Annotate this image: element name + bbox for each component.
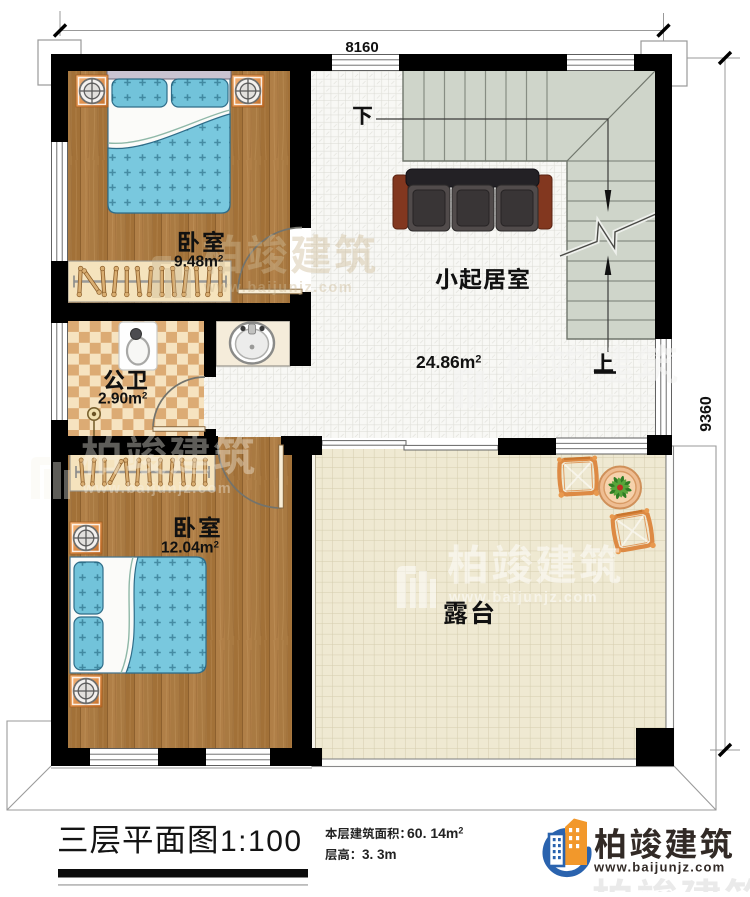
svg-text:1:100: 1:100 — [220, 825, 303, 858]
svg-text:24.86m2: 24.86m2 — [416, 352, 481, 372]
svg-text:8160: 8160 — [345, 39, 378, 56]
svg-text:9360: 9360 — [698, 396, 715, 432]
svg-text:12.04m2: 12.04m2 — [161, 540, 219, 557]
svg-text:9.48m2: 9.48m2 — [174, 254, 223, 271]
svg-text:www.baijunjz.com: www.baijunjz.com — [593, 860, 725, 875]
svg-text:3. 3m: 3. 3m — [362, 847, 397, 862]
svg-text:2.90m2: 2.90m2 — [98, 391, 147, 408]
svg-text:60. 14m2: 60. 14m2 — [407, 825, 463, 841]
